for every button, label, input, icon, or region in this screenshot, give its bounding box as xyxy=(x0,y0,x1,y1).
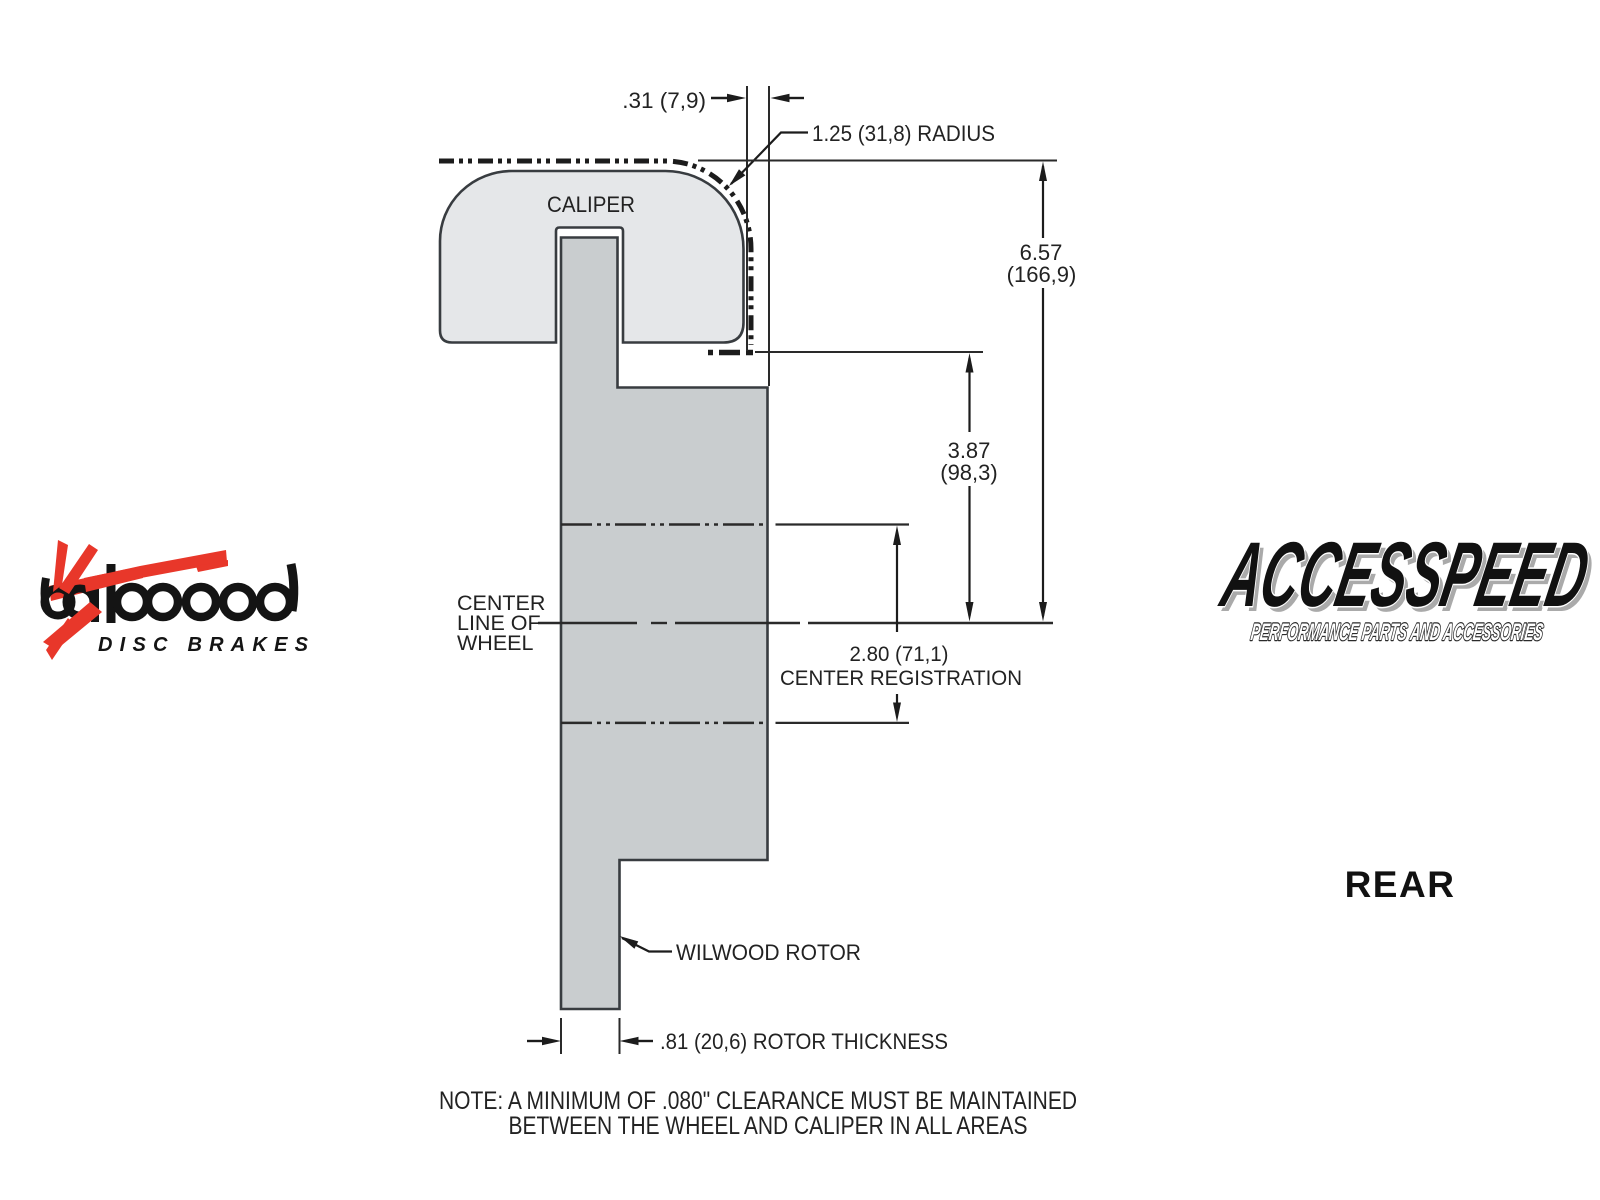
svg-text:(166,9): (166,9) xyxy=(1007,262,1077,287)
svg-text:WHEEL: WHEEL xyxy=(457,631,534,655)
svg-text:BETWEEN THE WHEEL AND CALIPER: BETWEEN THE WHEEL AND CALIPER IN ALL ARE… xyxy=(509,1112,1028,1140)
svg-text:PERFORMANCE PARTS AND ACCESSOR: PERFORMANCE PARTS AND ACCESSORIES xyxy=(1249,619,1545,646)
svg-text:ACCESSPEED: ACCESSPEED xyxy=(1213,523,1598,626)
svg-text:REAR: REAR xyxy=(1345,864,1456,905)
svg-text:CALIPER: CALIPER xyxy=(547,192,635,217)
svg-text:2.80 (71,1): 2.80 (71,1) xyxy=(850,642,949,666)
svg-text:NOTE: A MINIMUM OF .080" CLEAR: NOTE: A MINIMUM OF .080" CLEARANCE MUST … xyxy=(439,1087,1077,1115)
svg-text:(98,3): (98,3) xyxy=(940,460,997,485)
svg-text:1.25 (31,8) RADIUS: 1.25 (31,8) RADIUS xyxy=(812,121,995,146)
svg-text:.31 (7,9): .31 (7,9) xyxy=(622,88,706,113)
svg-text:CENTER REGISTRATION: CENTER REGISTRATION xyxy=(780,666,1022,690)
svg-text:.81 (20,6) ROTOR THICKNESS: .81 (20,6) ROTOR THICKNESS xyxy=(660,1029,948,1054)
svg-text:WILWOOD ROTOR: WILWOOD ROTOR xyxy=(676,940,861,965)
